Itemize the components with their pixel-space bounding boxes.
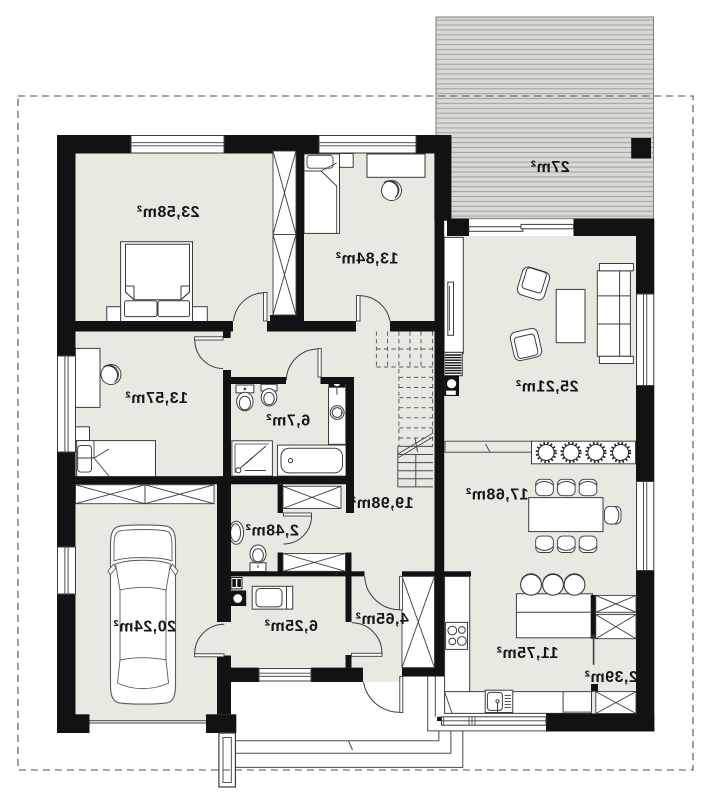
svg-text:20,24m²: 20,24m² — [113, 619, 176, 636]
svg-text:23,58m²: 23,58m² — [136, 204, 199, 221]
svg-text:13,84m²: 13,84m² — [335, 250, 398, 267]
svg-text:13,57m²: 13,57m² — [125, 390, 188, 407]
svg-text:2,39m²: 2,39m² — [584, 669, 638, 686]
svg-text:17,68m²: 17,68m² — [465, 487, 528, 504]
svg-text:6,25m²: 6,25m² — [264, 618, 318, 635]
svg-text:11,75m²: 11,75m² — [496, 645, 558, 662]
svg-text:19,98m²: 19,98m² — [350, 495, 413, 512]
svg-text:27m²: 27m² — [530, 159, 569, 176]
svg-text:6,7m²: 6,7m² — [266, 413, 310, 430]
svg-text:4,65m²: 4,65m² — [355, 611, 409, 628]
svg-text:25,21m²: 25,21m² — [515, 379, 578, 396]
svg-text:2,48m²: 2,48m² — [245, 523, 299, 540]
